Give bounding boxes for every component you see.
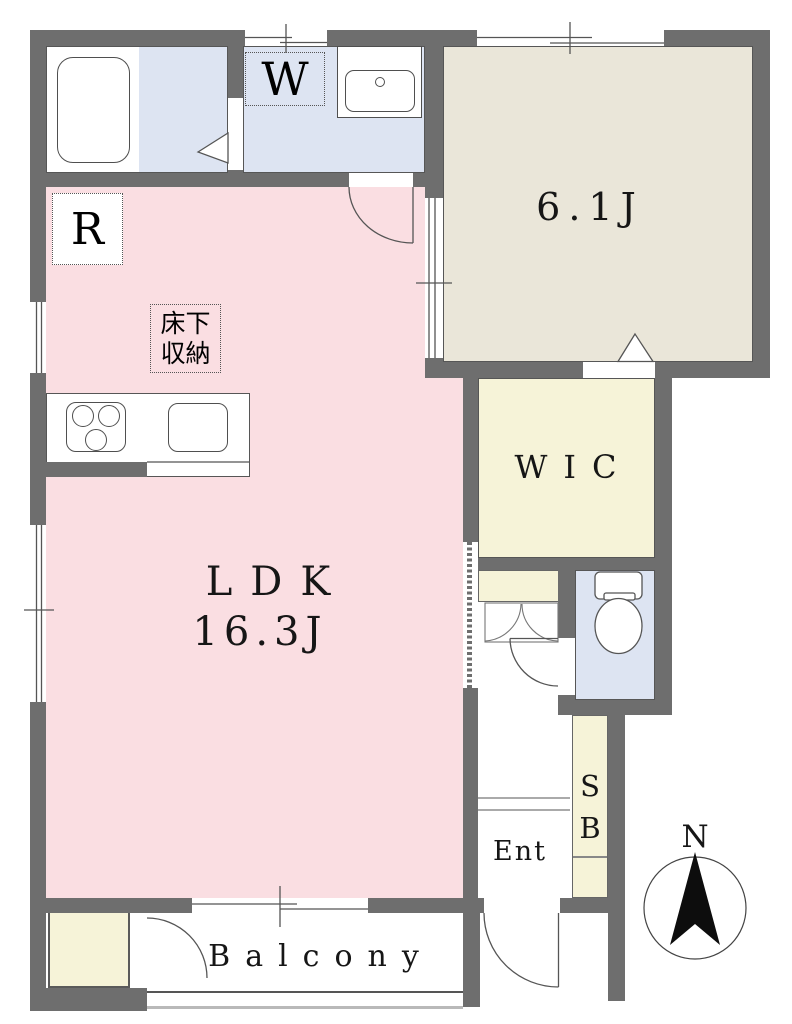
wic-label: WIC [490, 442, 645, 492]
sliding-door-symbol [416, 198, 452, 358]
north-arrow-icon [670, 852, 720, 945]
window-symbol [37, 302, 42, 373]
window-symbol [245, 24, 327, 53]
washing-machine-label: W [261, 52, 308, 106]
entrance-step [478, 798, 570, 810]
underfloor-storage-box: 床下 収納 [150, 304, 221, 373]
ldk-name-label: LDK [180, 558, 360, 606]
bathroom-door-symbol [198, 133, 228, 163]
bedroom-size-label: 6.1J [500, 180, 680, 234]
bedroom-door-symbol [618, 334, 653, 362]
door-swing [510, 639, 558, 687]
floor-plan-page: { "meta": { "type": "apartment-floor-pla… [0, 0, 792, 1024]
door-swing [484, 913, 559, 987]
compass-north-label: N [673, 820, 717, 854]
entrance-label: Ent [480, 836, 560, 866]
window-symbol [477, 22, 664, 54]
closet-door-swing [485, 603, 558, 642]
balcony-label: Balcony [150, 936, 480, 976]
ldk-size-label: 16.3J [170, 608, 350, 656]
refrigerator-box: R [52, 193, 123, 265]
underfloor-storage-label: 床下 [160, 309, 210, 339]
shoe-box-letter: B [579, 807, 600, 849]
toilet-fixture [595, 572, 642, 654]
shoe-box-label: S B [572, 762, 608, 852]
door-swing [349, 187, 413, 243]
compass [644, 852, 746, 959]
plan-symbols-layer [0, 0, 792, 1024]
balcony-sliding-door-symbol [192, 886, 368, 927]
washing-machine-box: W [245, 52, 325, 106]
refrigerator-label: R [71, 204, 104, 255]
shoe-box-letter: S [580, 765, 600, 807]
underfloor-storage-label: 収納 [160, 339, 210, 369]
window-symbol [24, 525, 54, 702]
